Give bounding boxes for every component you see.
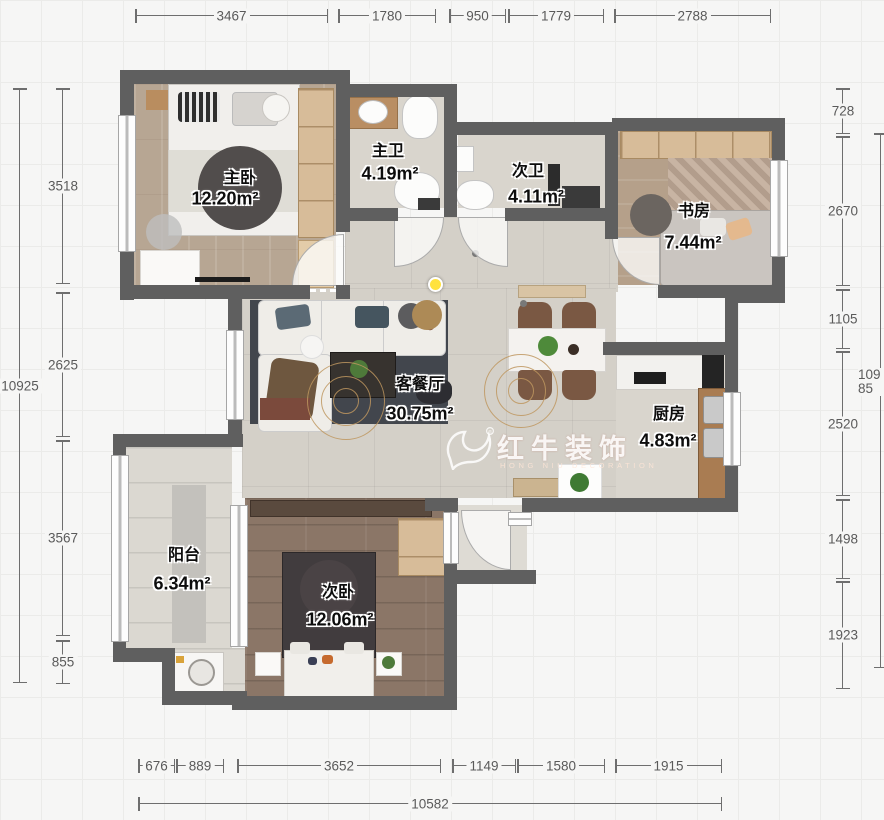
pillow-blue-1 xyxy=(275,304,312,331)
sbath-counter xyxy=(562,186,600,208)
dim-bottom-1: 889 xyxy=(176,760,224,772)
room-area-kitchen: 4.83m² xyxy=(639,431,696,452)
room-area-second-bedroom: 12.06m² xyxy=(306,610,373,631)
dim-label: 1149 xyxy=(466,759,501,774)
dim-bottom-2: 3652 xyxy=(237,760,441,772)
room-area-second-bath: 4.11m² xyxy=(508,187,564,208)
mbath-sink xyxy=(358,100,388,124)
dim-line xyxy=(880,133,881,668)
dim-label: 10925 xyxy=(0,378,42,393)
dim-right-total-label: 10985 xyxy=(858,368,884,396)
master-gray-rug xyxy=(146,214,182,250)
dim-label: 676 xyxy=(142,759,171,774)
wall-segment xyxy=(505,208,605,221)
dim-top-2: 950 xyxy=(449,10,506,22)
dim-label: 1498 xyxy=(825,532,861,547)
room-label-balcony: 阳台 xyxy=(168,541,200,565)
wall-segment xyxy=(444,84,457,217)
dim-left-1: 2625 xyxy=(57,292,69,437)
mbath-toilet xyxy=(402,95,438,139)
pillow-blue-2 xyxy=(355,306,389,328)
master-desk xyxy=(140,250,200,286)
dim-label: 3567 xyxy=(45,531,81,546)
light-point xyxy=(428,277,443,292)
dim-left-3: 855 xyxy=(57,640,69,684)
room-label-second-bedroom: 次卧 xyxy=(322,578,354,602)
wall-segment xyxy=(603,342,738,355)
wall-segment xyxy=(444,570,536,584)
entry-door-jamb xyxy=(443,512,459,564)
dim-label: 889 xyxy=(186,759,215,774)
wall-segment xyxy=(605,122,618,217)
wall-segment xyxy=(336,285,350,299)
entry-door-jamb xyxy=(508,512,532,526)
dining-console xyxy=(518,285,586,298)
bedroom2-cat-figure xyxy=(322,655,333,664)
dim-label: 728 xyxy=(829,104,858,119)
dim-left-0: 3518 xyxy=(57,88,69,284)
hall-plant xyxy=(570,473,589,492)
side-table-gold xyxy=(412,300,442,330)
dim-right-5: 1923 xyxy=(837,581,849,689)
dim-left-total: 10925 xyxy=(14,88,26,683)
dim-right-2: 1105 xyxy=(837,289,849,349)
ceiling-dot xyxy=(520,300,527,307)
master-stool xyxy=(262,94,290,122)
master-door-track xyxy=(195,277,250,282)
dim-label: 1915 xyxy=(650,759,686,774)
bedroom2-plant xyxy=(382,656,395,669)
dim-right-0: 728 xyxy=(837,88,849,134)
watermark-subtitle: HONG NIU DECORATION xyxy=(500,461,657,470)
wall-segment xyxy=(425,498,458,511)
dim-top-0: 3467 xyxy=(135,10,328,22)
bedroom2-pillow-2 xyxy=(344,642,364,654)
washer-door-icon xyxy=(188,659,215,686)
dim-right-1: 2670 xyxy=(837,136,849,286)
study-wardrobe xyxy=(620,131,772,159)
wall-segment xyxy=(120,70,350,84)
sofa-bench xyxy=(260,398,310,420)
dim-bottom-5: 1915 xyxy=(615,760,722,772)
window xyxy=(118,115,136,252)
dim-top-1: 1780 xyxy=(338,10,436,22)
registered-mark: ® xyxy=(488,429,492,436)
bedroom2-pillow-1 xyxy=(290,642,310,654)
master-nightstand xyxy=(146,90,168,110)
dim-label: 3518 xyxy=(45,179,81,194)
sofa-ball-pillow xyxy=(300,335,324,359)
room-label-second-bath: 次卫 xyxy=(512,157,544,181)
dim-label: 2788 xyxy=(674,9,710,24)
room-area-master-bath: 4.19m² xyxy=(361,164,418,185)
dim-label: 10582 xyxy=(408,797,452,812)
wall-segment xyxy=(232,696,457,710)
dim-right-total-line xyxy=(875,133,884,668)
room-label-master: 主卧 xyxy=(224,164,256,188)
dining-plate xyxy=(568,344,579,355)
washer-detail xyxy=(176,656,184,663)
window xyxy=(111,455,129,642)
dining-chair-4 xyxy=(562,370,596,400)
sbath-toilet xyxy=(456,180,494,210)
dim-bottom-total: 10582 xyxy=(138,798,722,810)
chandelier-ring xyxy=(307,362,385,440)
dim-label: 855 xyxy=(49,655,78,670)
dim-right-4: 1498 xyxy=(837,499,849,579)
dim-label: 1923 xyxy=(825,628,861,643)
room-area-master: 12.20m² xyxy=(191,189,258,210)
master-pillow-striped xyxy=(178,92,220,122)
bedroom2-console xyxy=(250,500,432,517)
kitchen-fridge xyxy=(702,355,724,388)
hongniu-bull-logo-icon: ® xyxy=(443,422,495,470)
wall-segment xyxy=(725,290,738,350)
dim-bottom-4: 1580 xyxy=(517,760,605,772)
kitchen-stove xyxy=(634,372,666,384)
wall-segment xyxy=(522,498,738,512)
wall-segment xyxy=(605,217,618,239)
wall-segment xyxy=(450,122,618,135)
dim-label: 1779 xyxy=(538,9,574,24)
master-wardrobe xyxy=(298,88,334,238)
dim-top-4: 2788 xyxy=(614,10,771,22)
mbath-mat xyxy=(418,198,440,210)
bedroom2-nightstand-left xyxy=(255,652,281,676)
wall-segment xyxy=(342,208,398,221)
dim-label: 2625 xyxy=(45,357,81,372)
chandelier-ring xyxy=(484,354,558,428)
wall-segment xyxy=(113,434,243,447)
window xyxy=(723,392,741,466)
dim-label: 3467 xyxy=(213,9,249,24)
room-label-master-bath: 主卫 xyxy=(372,137,404,161)
dim-label: 2520 xyxy=(825,416,861,431)
room-label-study: 书房 xyxy=(678,197,710,221)
dim-label: 950 xyxy=(463,9,492,24)
dim-left-2: 3567 xyxy=(57,440,69,636)
room-label-living: 客餐厅 xyxy=(396,370,444,394)
dim-label: 1105 xyxy=(825,312,860,327)
wall-segment xyxy=(612,118,785,131)
sliding-door xyxy=(230,505,248,647)
room-label-kitchen: 厨房 xyxy=(653,400,685,424)
study-round-rug xyxy=(630,194,672,236)
dim-top-3: 1779 xyxy=(508,10,604,22)
window xyxy=(770,160,788,257)
wall-segment xyxy=(342,84,454,97)
dim-label: 3652 xyxy=(321,759,357,774)
room-area-study: 7.44m² xyxy=(664,233,721,254)
dim-label: 1580 xyxy=(543,759,579,774)
room-area-balcony: 6.34m² xyxy=(153,574,210,595)
dim-bottom-3: 1149 xyxy=(452,760,516,772)
wall-segment xyxy=(120,285,310,299)
hall-bench xyxy=(513,478,560,497)
bedroom2-cat-figure-2 xyxy=(308,657,317,665)
dim-label: 1780 xyxy=(369,9,405,24)
opening-dashes xyxy=(310,289,336,292)
window xyxy=(226,330,244,420)
floorplan-page: { "plan": { "rooms": [ {"name": "主卧", "a… xyxy=(0,0,884,820)
bedroom2-wardrobe xyxy=(398,518,446,576)
dim-bottom-0: 676 xyxy=(138,760,175,772)
dim-right-3: 2520 xyxy=(837,351,849,496)
dining-plant xyxy=(538,336,558,356)
dim-label: 2670 xyxy=(825,204,861,219)
